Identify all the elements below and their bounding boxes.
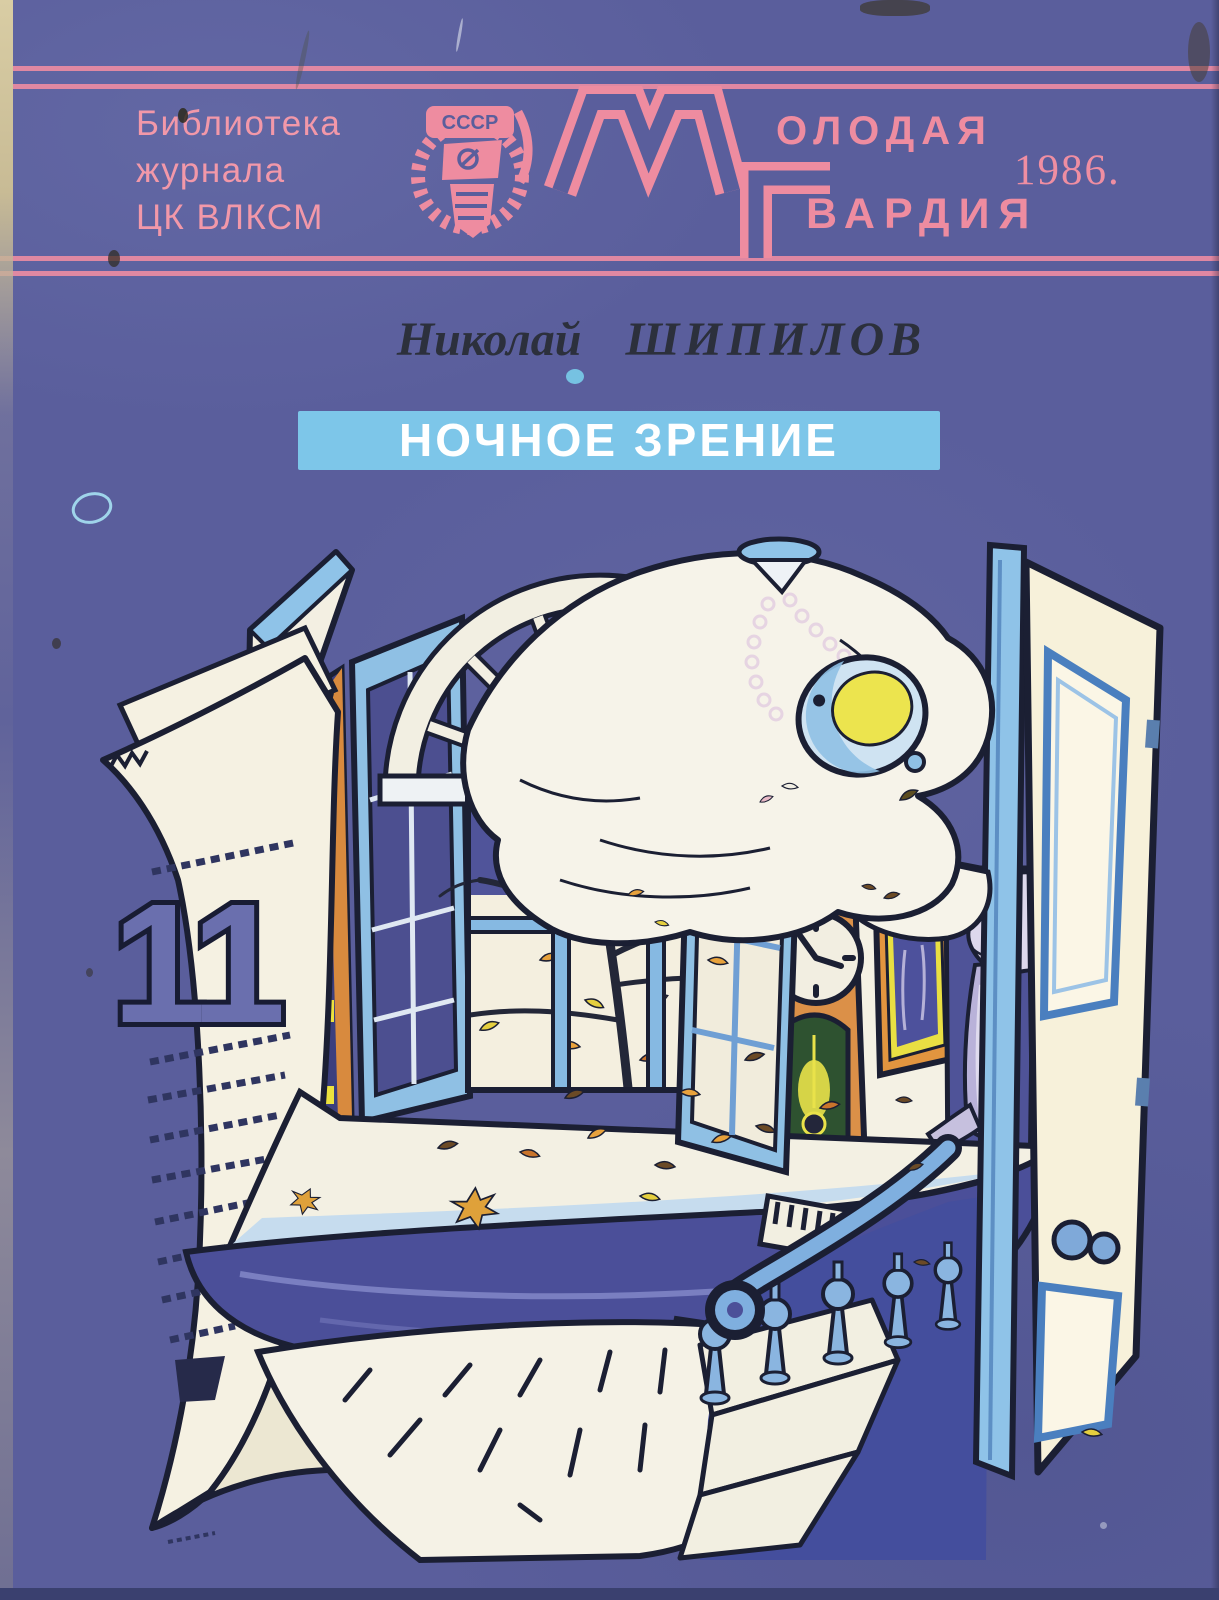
calendar-day-number: 11 xyxy=(112,869,281,1059)
stain xyxy=(108,250,120,267)
stain xyxy=(1188,22,1210,82)
book-cover: Библиотека журнала ЦК ВЛКСМ СССР ОЛОДАЯ … xyxy=(0,0,1219,1600)
bottom-edge xyxy=(0,1588,1219,1600)
stain xyxy=(860,0,930,16)
stain xyxy=(178,108,188,123)
chalk-circle-doodle xyxy=(70,490,114,527)
spine-edge xyxy=(0,0,13,1600)
right-edge-shadow xyxy=(1211,0,1219,1600)
stain xyxy=(86,968,93,977)
right-door xyxy=(1026,562,1160,1472)
pendulum-bob xyxy=(803,1113,825,1135)
cover-illustration: 11 xyxy=(0,0,1219,1600)
door-hinge xyxy=(1135,1078,1150,1107)
right-door-panel xyxy=(1044,652,1126,1016)
door-hinge xyxy=(1145,720,1160,749)
right-door-panel xyxy=(1038,1286,1118,1438)
scratch xyxy=(1100,1522,1107,1529)
stain xyxy=(52,638,61,649)
